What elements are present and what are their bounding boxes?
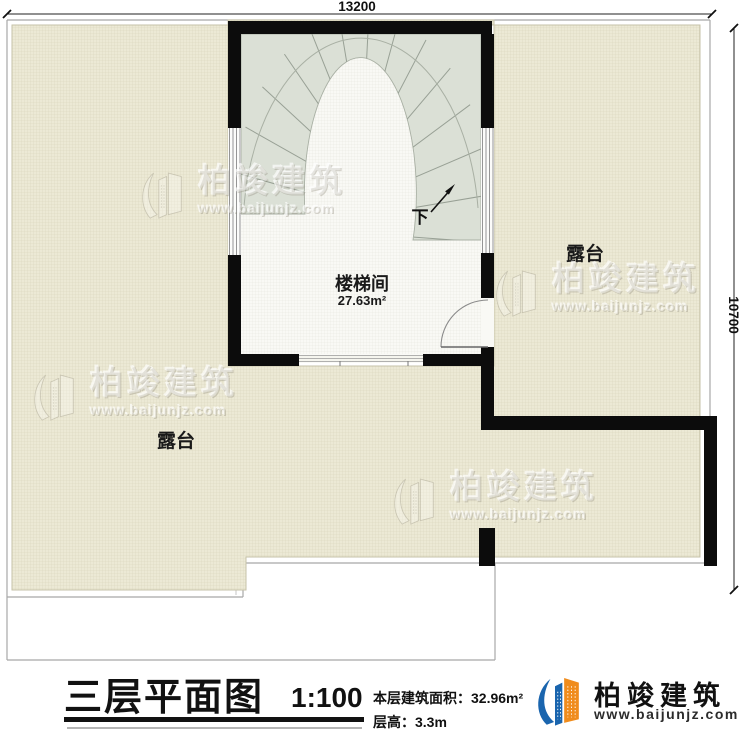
floor-height-value: 3.3m <box>415 714 447 730</box>
floor-area-line: 本层建筑面积：32.96m² <box>373 688 523 708</box>
window-right <box>481 128 494 253</box>
dimension-top-value: 13200 <box>338 0 376 14</box>
terrace-right-label: 露台 <box>566 242 604 265</box>
window-left <box>228 128 241 255</box>
dimension-right-value: 10700 <box>726 296 741 334</box>
floor-area-label: 本层建筑面积： <box>373 690 471 706</box>
dimension-right: 10700 <box>726 24 741 594</box>
company-logo-icon <box>533 671 588 729</box>
page-title: 三层平面图 <box>64 666 264 721</box>
title-underline <box>64 717 364 722</box>
floor-height-label: 层高： <box>373 714 415 730</box>
floor-plan-page: 13200 10700 楼梯间 27.63m² 露台 露台 下 柏竣建筑 www… <box>0 0 750 740</box>
stairwell-label: 楼梯间 <box>335 273 389 294</box>
floor-area-value: 32.96m² <box>471 690 523 706</box>
floor-plan-drawing: 13200 10700 楼梯间 27.63m² 露台 露台 下 <box>0 0 750 662</box>
stair-down-label: 下 <box>412 208 429 227</box>
dimension-top: 13200 <box>3 0 716 18</box>
terrace-left-label: 露台 <box>157 429 195 452</box>
company-logo-url: www.baijunjz.com <box>594 706 739 722</box>
plan-scale: 1:100 <box>291 682 363 714</box>
title-underline-shadow <box>67 727 362 729</box>
window-bottom <box>299 355 423 367</box>
stairwell-area-label: 27.63m² <box>338 293 387 308</box>
floor-height-line: 层高：3.3m <box>373 712 447 732</box>
